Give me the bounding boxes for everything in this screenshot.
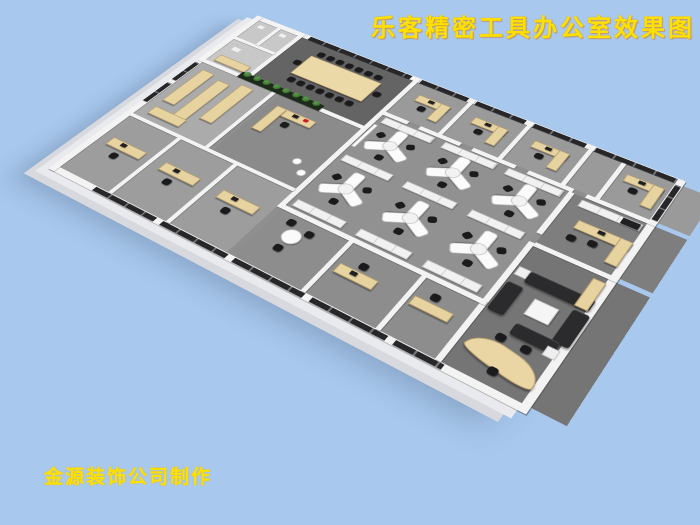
- office-chair: [392, 226, 405, 235]
- office-chair: [536, 199, 546, 206]
- office-chair: [461, 231, 474, 240]
- office-chair: [427, 216, 437, 223]
- office-chair: [502, 184, 515, 192]
- office-chair: [331, 172, 343, 180]
- office-chair: [375, 131, 387, 138]
- office-chair: [460, 258, 473, 268]
- floor-plan-3d: [48, 15, 686, 414]
- office-chair: [394, 201, 407, 209]
- office-chair: [503, 209, 516, 218]
- office-chair: [469, 171, 478, 177]
- office-chair: [327, 197, 340, 206]
- office-chair: [437, 157, 449, 165]
- office-chair: [373, 153, 385, 161]
- office-chair: [362, 187, 372, 194]
- plant-icon: [251, 75, 262, 82]
- plant-icon: [271, 83, 282, 90]
- office-rendering-canvas: 乐客精密工具办公室效果图 金源装饰公司制作: [0, 0, 700, 525]
- office-chair: [496, 247, 506, 254]
- credit-text: 金源装饰公司制作: [44, 462, 212, 489]
- title-text: 乐客精密工具办公室效果图: [371, 8, 695, 43]
- office-chair: [436, 180, 448, 188]
- office-chair: [406, 144, 415, 150]
